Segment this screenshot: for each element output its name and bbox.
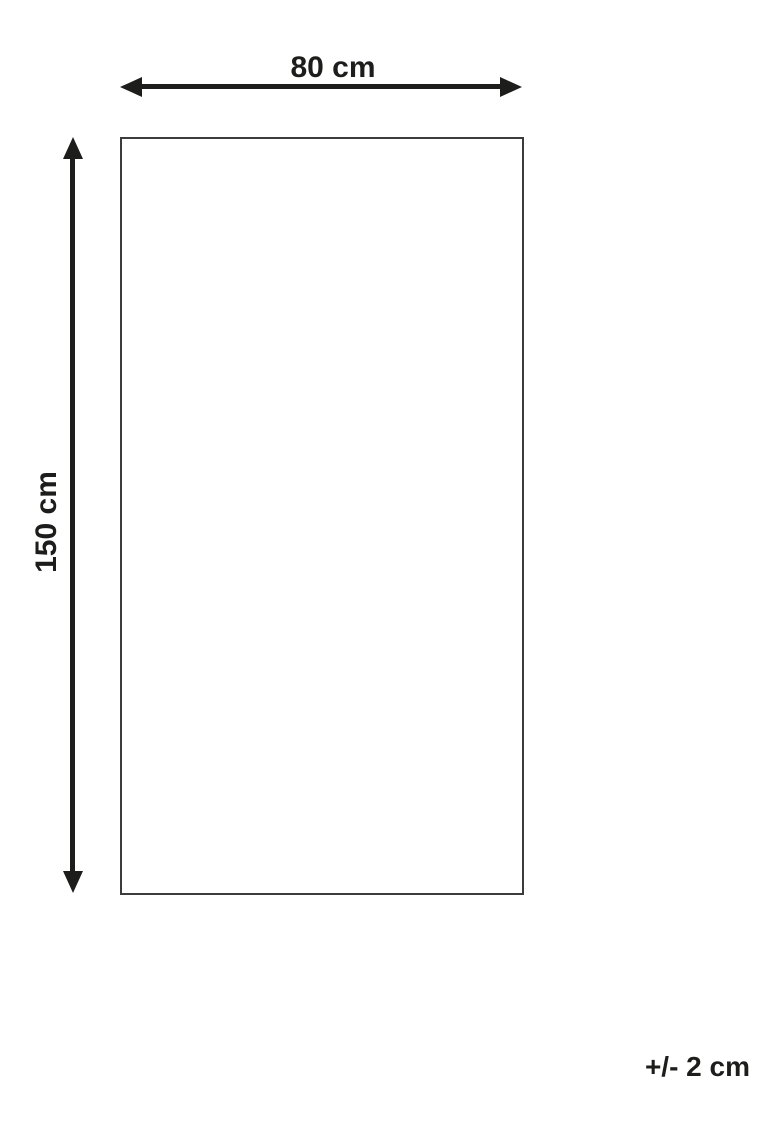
arrowhead-down-icon: [63, 871, 83, 893]
tolerance-label: +/- 2 cm: [645, 1053, 750, 1081]
product-outline: [120, 137, 524, 895]
width-arrow-shaft: [136, 84, 506, 89]
height-dimension-arrow: [63, 137, 83, 893]
width-dimension-arrow: [120, 77, 522, 97]
arrowhead-right-icon: [500, 77, 522, 97]
height-dimension-label: 150 cm: [32, 471, 62, 573]
dimension-diagram: 80 cm 150 cm +/- 2 cm: [0, 0, 784, 1135]
height-arrow-shaft: [70, 153, 75, 877]
